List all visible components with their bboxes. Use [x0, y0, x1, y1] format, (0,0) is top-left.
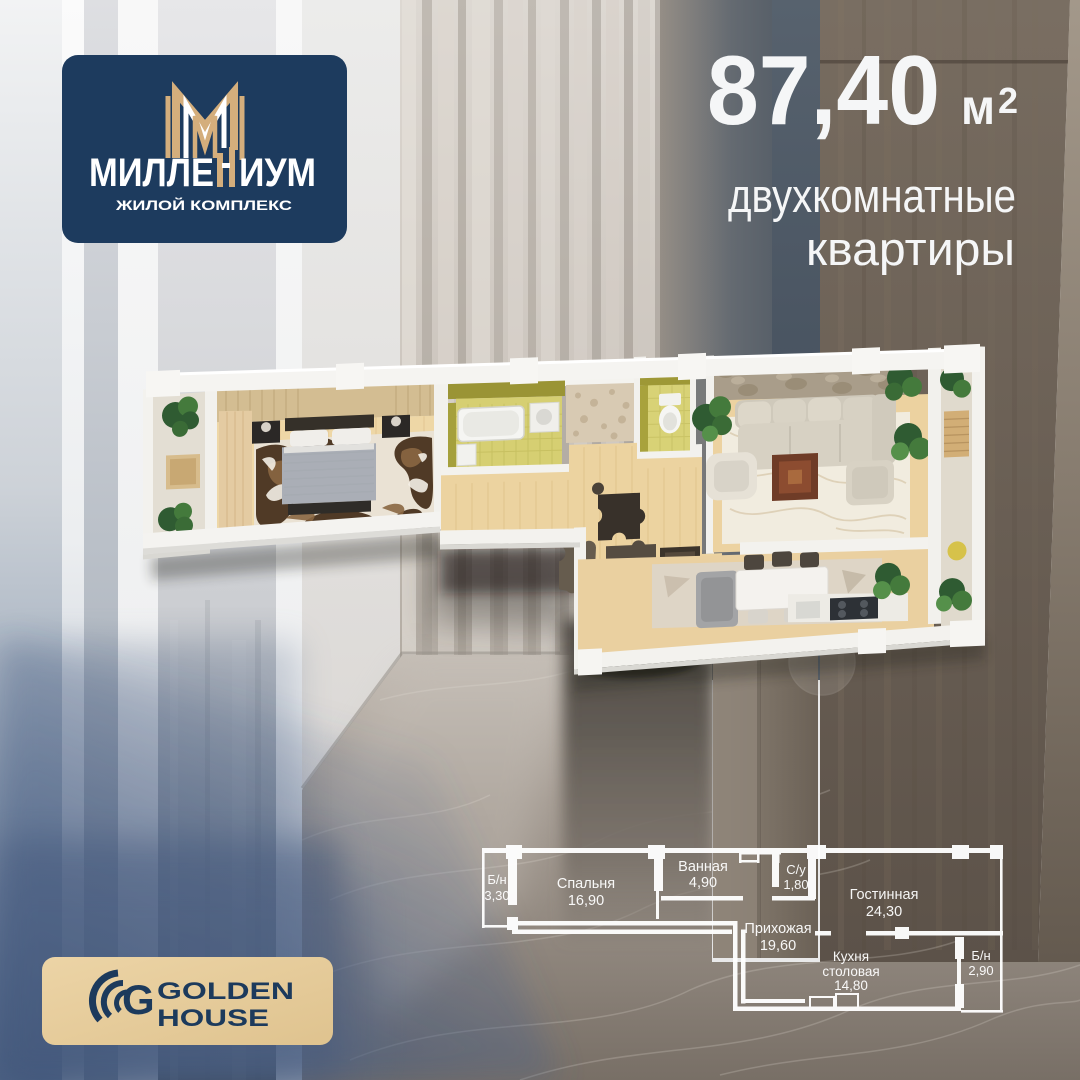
svg-text:Ванная: Ванная — [678, 859, 728, 875]
svg-text:ИУМ: ИУМ — [239, 151, 316, 195]
svg-text:24,30: 24,30 — [866, 904, 902, 920]
svg-text:16,90: 16,90 — [568, 893, 604, 909]
svg-text:3,30: 3,30 — [484, 888, 509, 903]
svg-text:14,80: 14,80 — [834, 978, 868, 993]
svg-text:2,90: 2,90 — [968, 963, 993, 978]
svg-text:GOLDEN: GOLDEN — [157, 978, 294, 1005]
svg-text:МИЛЛЕ: МИЛЛЕ — [89, 151, 214, 195]
svg-text:Б/н: Б/н — [971, 948, 990, 963]
svg-text:двухкомнатные: двухкомнатные — [728, 169, 1016, 222]
svg-text:квартиры: квартиры — [806, 222, 1015, 275]
svg-text:С/у: С/у — [786, 862, 806, 877]
svg-text:87,40: 87,40 — [707, 35, 940, 145]
svg-text:ЖИЛОЙ КОМПЛЕКС: ЖИЛОЙ КОМПЛЕКС — [115, 198, 293, 213]
svg-text:Гостинная: Гостинная — [850, 887, 919, 903]
svg-text:столовая: столовая — [822, 964, 879, 979]
svg-text:G: G — [122, 976, 155, 1023]
svg-text:Б/н: Б/н — [487, 872, 506, 887]
svg-text:м: м — [961, 79, 995, 135]
svg-text:1,80: 1,80 — [783, 877, 808, 892]
svg-text:Прихожая: Прихожая — [744, 921, 811, 937]
svg-text:Кухня: Кухня — [833, 949, 869, 964]
svg-text:Спальня: Спальня — [557, 876, 615, 892]
svg-text:4,90: 4,90 — [689, 875, 717, 891]
svg-text:2: 2 — [998, 80, 1018, 121]
svg-text:19,60: 19,60 — [760, 938, 796, 954]
svg-text:HOUSE: HOUSE — [157, 1005, 269, 1032]
